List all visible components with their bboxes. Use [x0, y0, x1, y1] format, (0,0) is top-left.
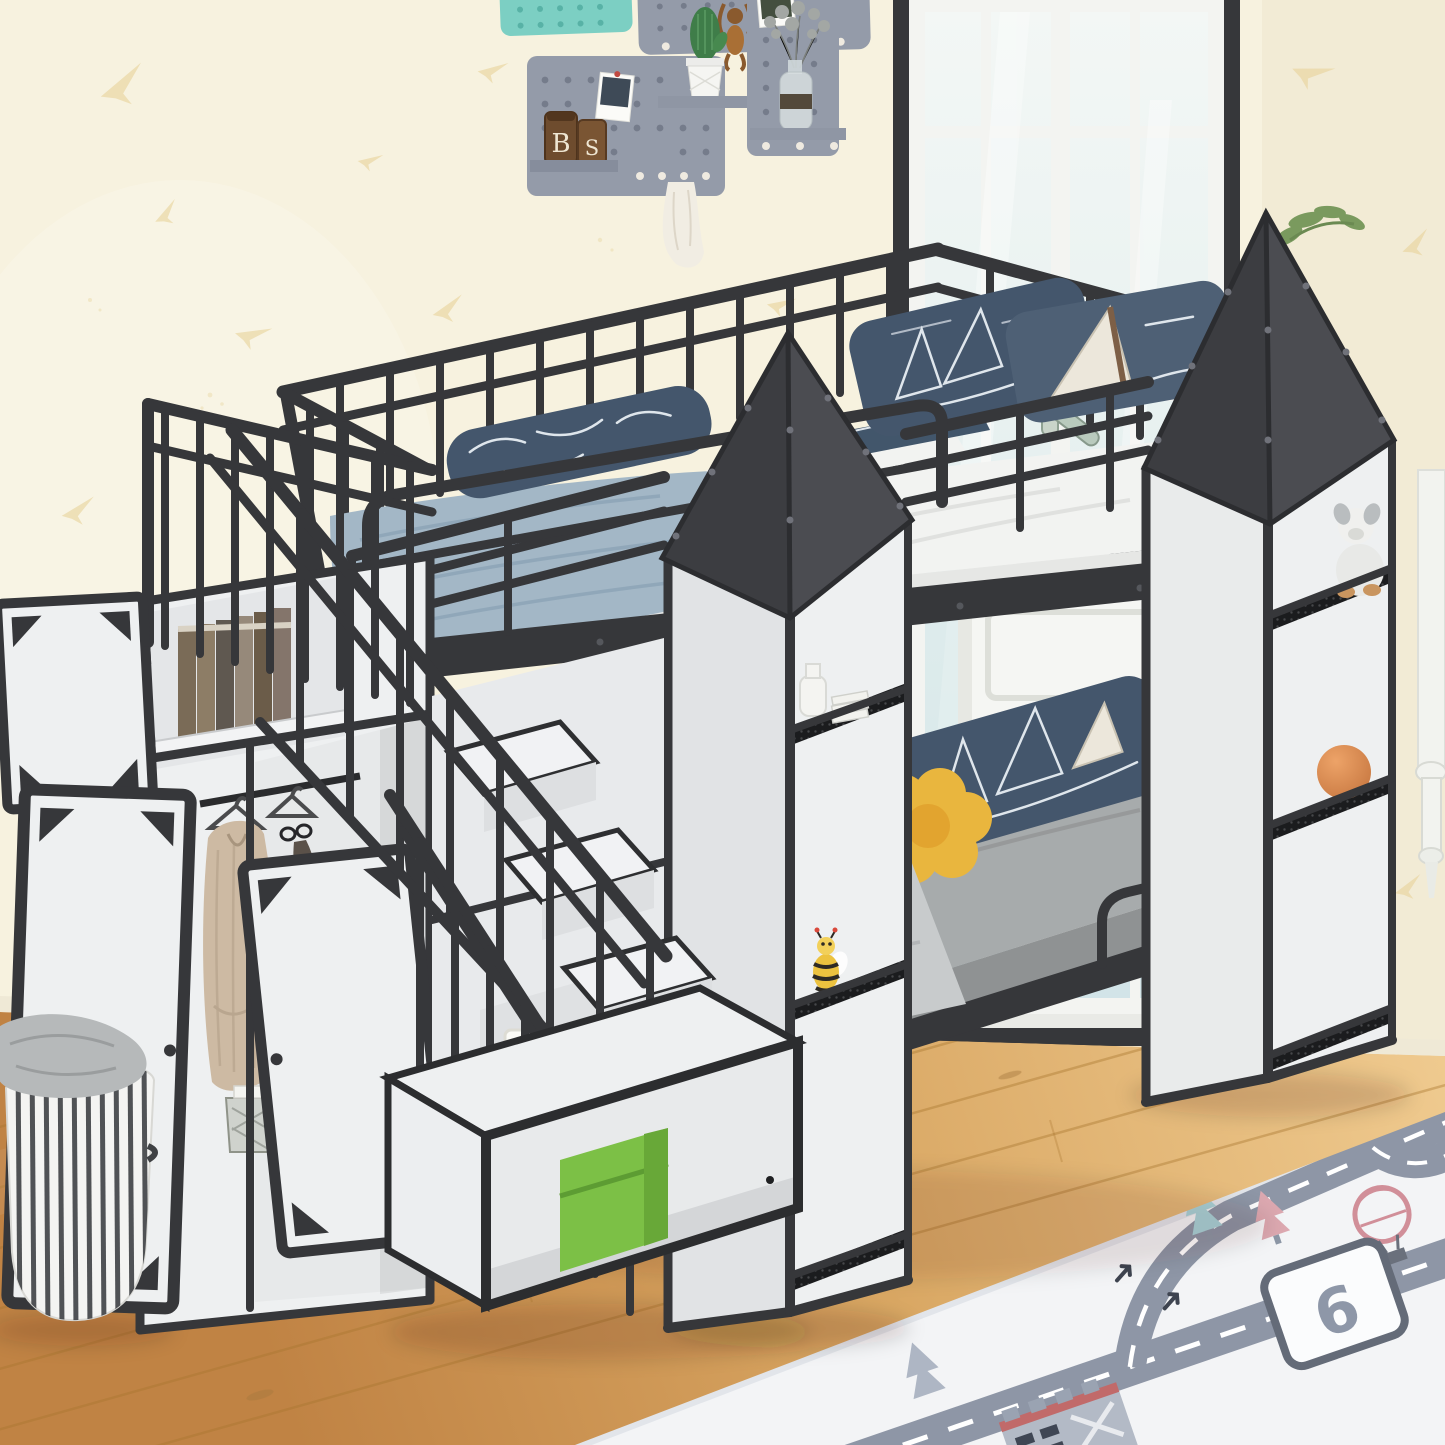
laundry-basket	[0, 1014, 155, 1330]
pegboard-shelf-small	[658, 96, 752, 108]
scene-canvas: B S	[0, 0, 1445, 1445]
pegboard-right	[747, 0, 846, 156]
jar-letter-s: S	[585, 136, 599, 160]
center-tower-right-face	[790, 520, 908, 1312]
pegboard-shelf-left	[530, 160, 618, 172]
jar-letter-b: B	[551, 129, 570, 159]
pegboard-shelf-right	[750, 128, 846, 140]
letter-jars: B S	[545, 112, 606, 164]
right-tower-left-face	[1146, 468, 1268, 1102]
open-door-top	[0, 596, 158, 810]
bedroom-photo: B S	[0, 0, 1445, 1445]
polaroid-photo	[596, 69, 635, 121]
pegboard-teal	[499, 0, 633, 36]
